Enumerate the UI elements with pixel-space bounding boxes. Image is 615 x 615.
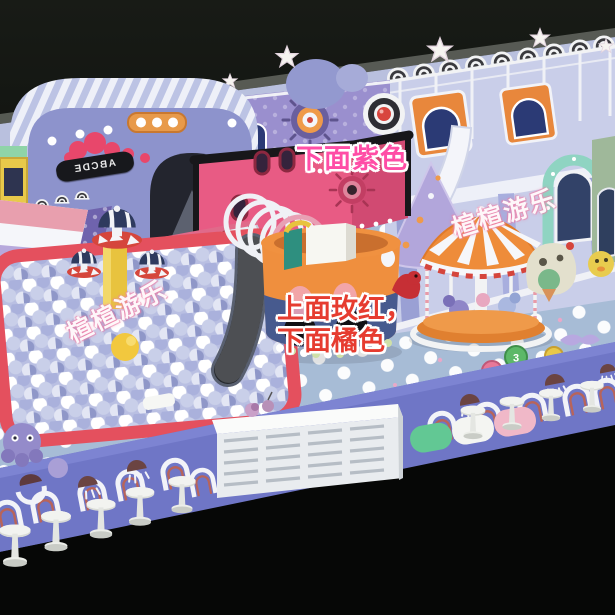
abcde-banner-text: ABCDE (73, 158, 117, 176)
yellow-duck (111, 333, 139, 361)
lavender-dome-small (336, 64, 368, 92)
annotation-rose-orange-note: 上面玫红， 下面橘色 (277, 293, 412, 357)
yellow-ball-toy (588, 251, 614, 277)
playground-render: 3 4 (0, 0, 615, 615)
lavender-dome (286, 59, 346, 109)
sage-panel (592, 136, 615, 266)
annotation-line1: 上面玫红， (277, 293, 412, 325)
orange-arch-window (500, 83, 557, 145)
orange-light-bar (128, 113, 186, 132)
annotation-line2: 下面橘色 (277, 325, 412, 357)
speaker-target (363, 93, 405, 135)
annotation-purple-note: 下面紫色 (296, 137, 408, 176)
